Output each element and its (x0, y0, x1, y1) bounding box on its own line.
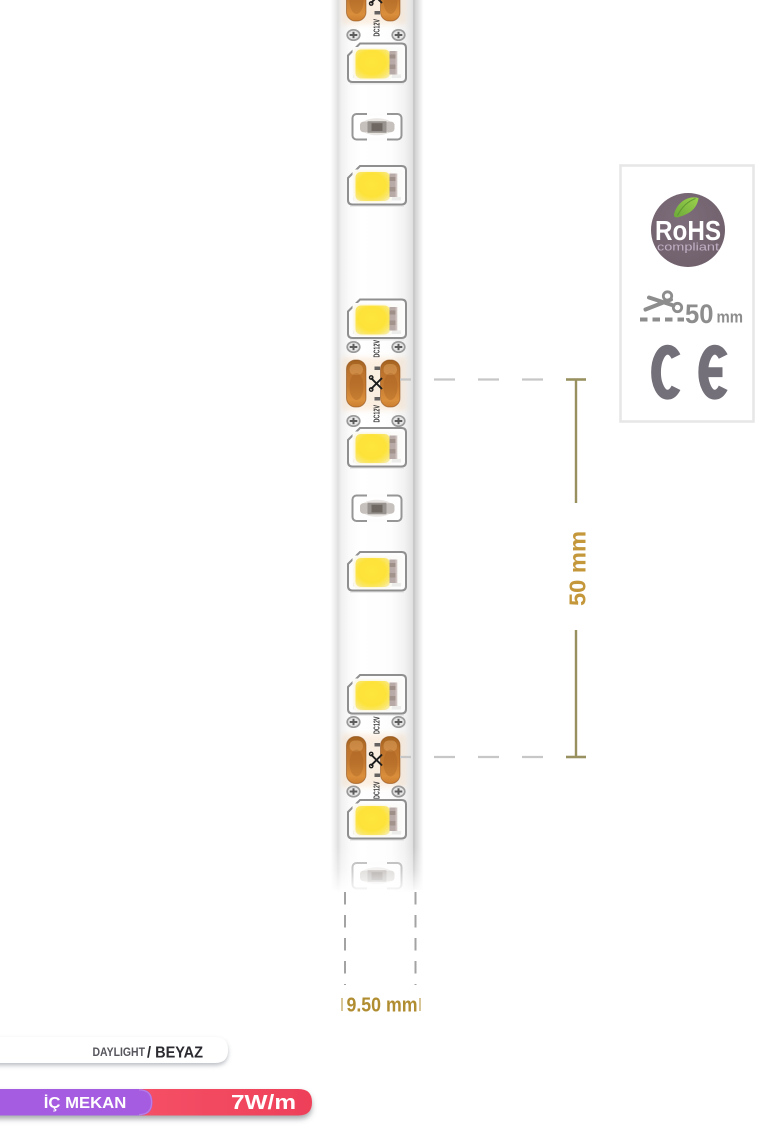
svg-text:9.50 mm: 9.50 mm (347, 995, 418, 1017)
svg-text:DC12V: DC12V (373, 716, 382, 734)
svg-text:DC12V: DC12V (373, 781, 382, 799)
svg-text:DAYLIGHT: DAYLIGHT (93, 1047, 146, 1059)
svg-text:7W/m: 7W/m (231, 1092, 296, 1114)
svg-text:DC12V: DC12V (373, 340, 382, 358)
svg-text:mm: mm (717, 309, 744, 327)
svg-text:DC12V: DC12V (373, 19, 382, 37)
svg-text:/ BEYAZ: / BEYAZ (147, 1045, 203, 1062)
svg-text:50: 50 (685, 299, 714, 329)
svg-text:DC12V: DC12V (373, 405, 382, 423)
svg-text:compliant: compliant (657, 242, 719, 254)
svg-text:İÇ MEKAN: İÇ MEKAN (44, 1094, 126, 1112)
svg-text:50 mm: 50 mm (565, 531, 591, 606)
